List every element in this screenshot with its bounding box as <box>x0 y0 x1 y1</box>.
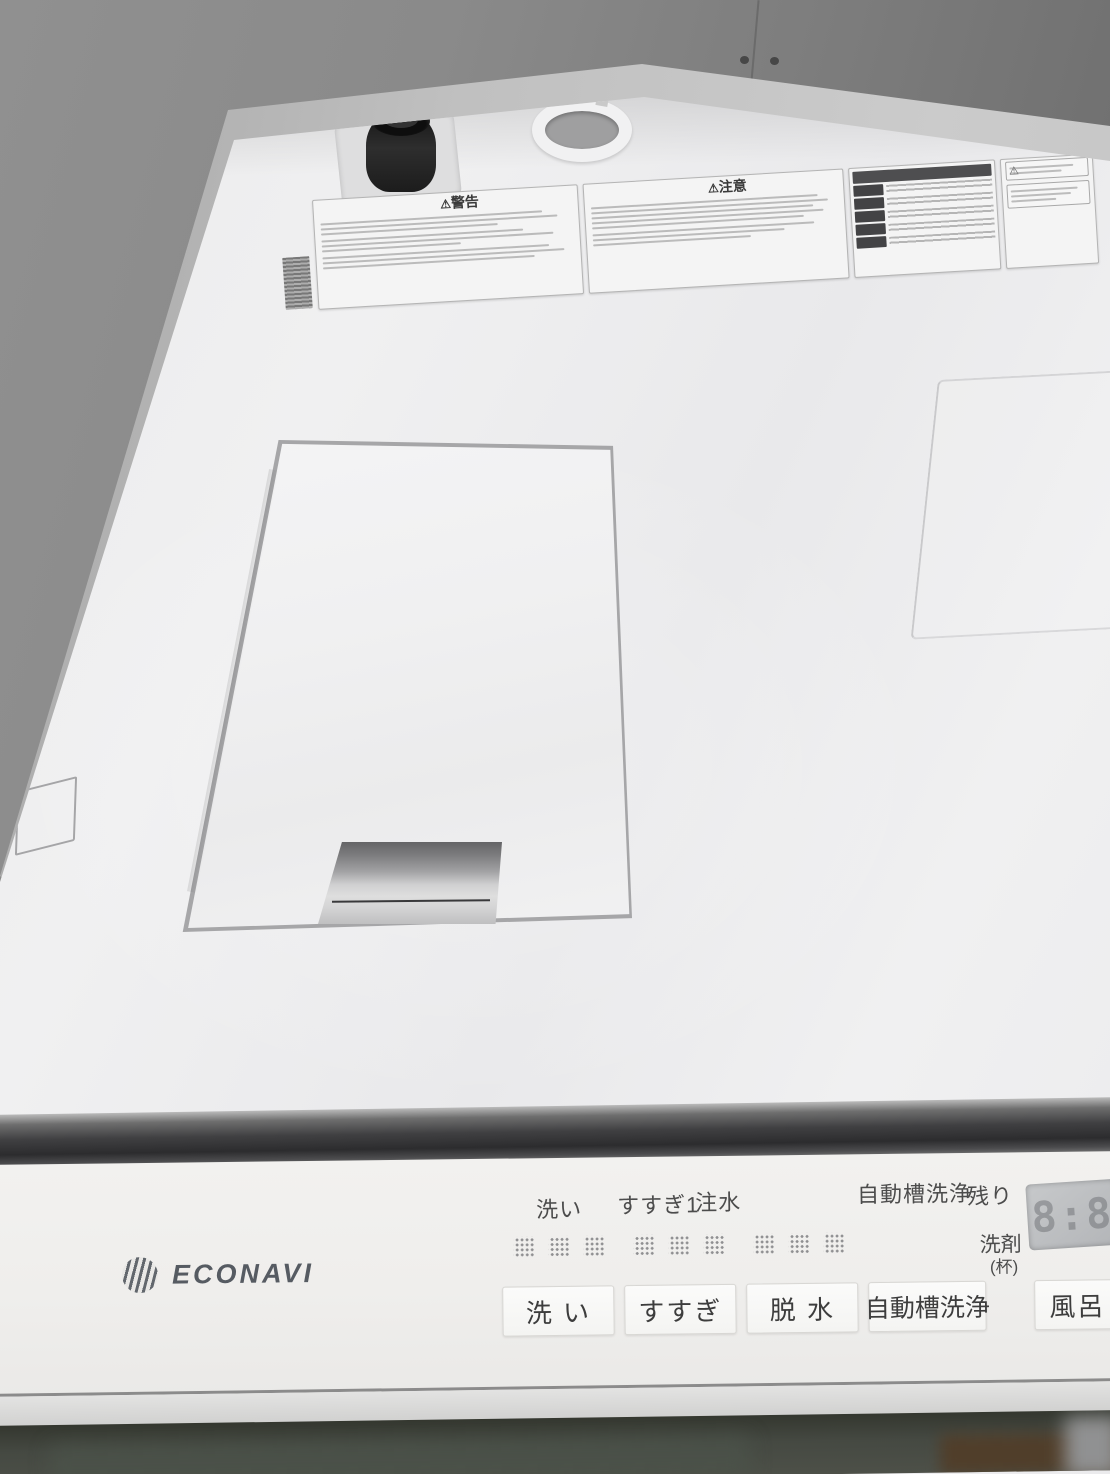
detergent-unit-label: (杯) <box>990 1252 1019 1277</box>
progress-indicator-dot-matrix <box>788 1233 809 1254</box>
econavi-logo-text: ECONAVI <box>172 1257 314 1290</box>
barcode-sticker <box>282 256 313 310</box>
rinse-button[interactable]: すすぎ <box>624 1284 737 1335</box>
econavi-logo: ECONAVI <box>122 1255 314 1293</box>
wash-button[interactable]: 洗 い <box>502 1285 615 1336</box>
progress-indicator-dot-matrix <box>584 1235 605 1256</box>
time-display: 8:8 <box>1025 1179 1110 1251</box>
caution-section: ⚠注意 <box>583 168 849 293</box>
econavi-leaf-icon <box>122 1257 158 1293</box>
progress-indicator-dot-matrix <box>634 1235 655 1256</box>
warning-triangle-icon: ⚠ <box>440 197 452 212</box>
status-label-remaining: 残り <box>967 1178 1013 1211</box>
side-note-section: ⚠ <box>999 154 1099 269</box>
spin-button[interactable]: 脱 水 <box>746 1282 859 1333</box>
washing-machine-photo: ⚠警告 ⚠注意 <box>0 0 1110 1474</box>
progress-indicator-dot-matrix <box>514 1236 535 1257</box>
status-label-fill: 注水 <box>695 1185 741 1218</box>
warning-triangle-icon: ⚠ <box>708 181 720 196</box>
lid-handle-recess[interactable] <box>318 842 502 924</box>
progress-indicator-dot-matrix <box>704 1234 725 1255</box>
deck-side-marking <box>15 776 77 856</box>
warning-section: ⚠警告 <box>312 184 584 310</box>
status-label-tub-clean: 自動槽洗浄 <box>857 1176 972 1209</box>
progress-indicator-dot-matrix <box>549 1236 570 1257</box>
front-reflection <box>50 1435 750 1474</box>
progress-indicator-dot-matrix <box>669 1234 690 1255</box>
front-corner-highlight <box>1065 1416 1110 1474</box>
tub-clean-button[interactable]: 自動槽洗浄 <box>868 1281 987 1332</box>
status-label-wash: 洗い <box>536 1192 582 1225</box>
progress-indicator-dot-matrix <box>823 1232 844 1253</box>
progress-indicator-dot-matrix <box>753 1233 774 1254</box>
hose-port-ring <box>532 98 632 162</box>
wall-screw <box>740 56 749 64</box>
status-label-rinse1: すすぎ1 <box>617 1187 700 1220</box>
instruction-table <box>848 159 1001 278</box>
filter-access-lid[interactable] <box>180 436 632 932</box>
control-panel: ECONAVI 洗い すすぎ1 注水 自動槽洗浄 残り 洗剤 (杯) 8:8 洗… <box>0 1151 1110 1401</box>
time-display-digits: 8:8 <box>1030 1188 1110 1242</box>
recessed-panel-outline <box>911 366 1110 639</box>
bath-water-button[interactable]: 風呂 <box>1034 1279 1110 1330</box>
wall-screw <box>770 57 779 65</box>
